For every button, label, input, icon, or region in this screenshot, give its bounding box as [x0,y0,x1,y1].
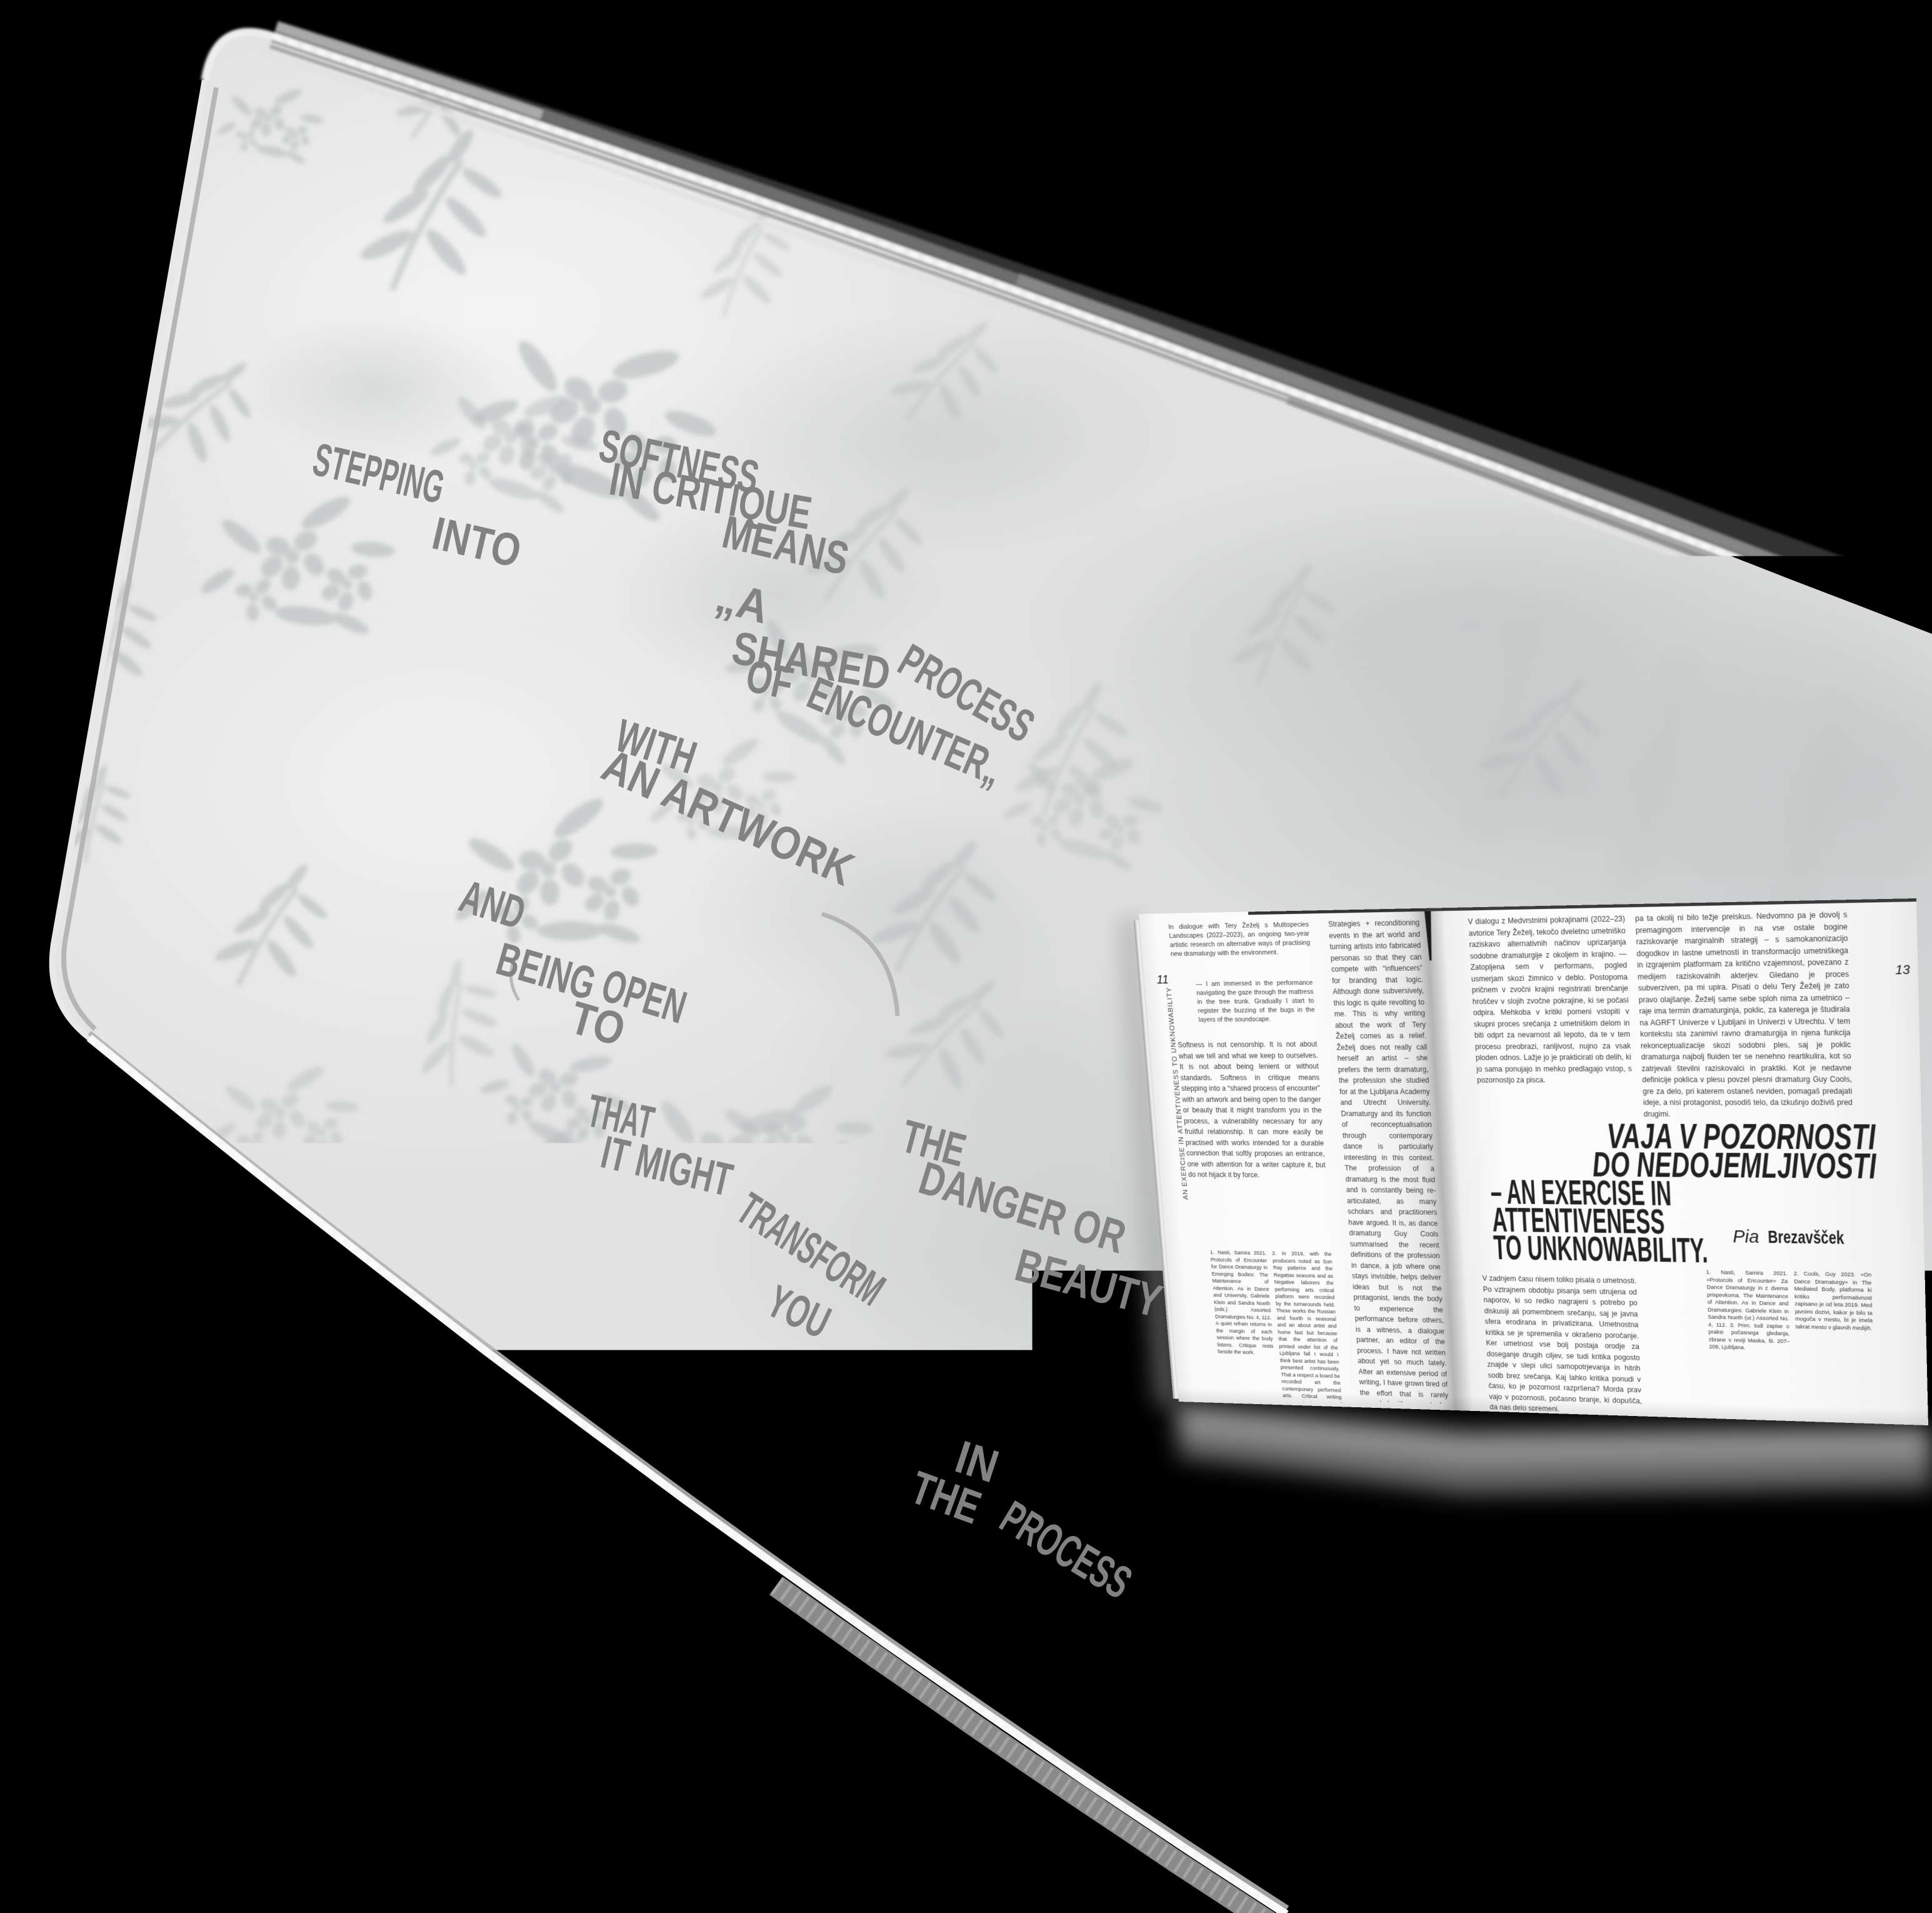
svg-text:Brezavšček: Brezavšček [1768,1227,1845,1248]
svg-text:TO UNKNOWABILITY.: TO UNKNOWABILITY. [1493,1228,1709,1270]
svg-text:Pia: Pia [1733,1227,1759,1247]
